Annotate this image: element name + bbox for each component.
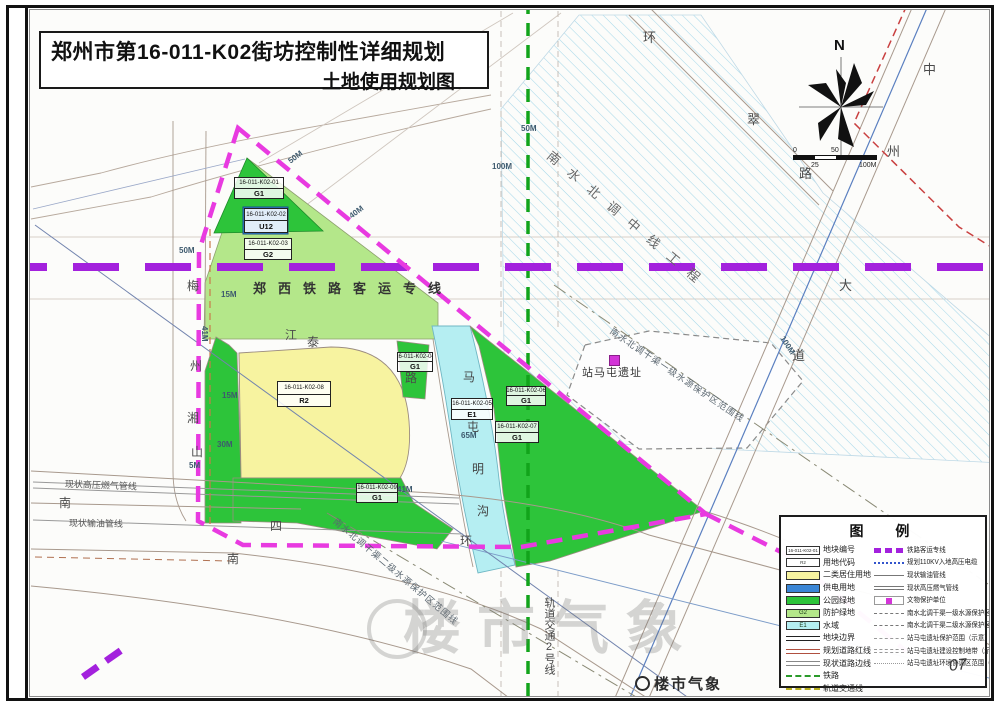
- map-label: 中: [923, 63, 936, 76]
- legend-swatch: [786, 661, 820, 666]
- legend-item: 文物保护单位: [874, 594, 986, 607]
- legend-title: 图 例: [792, 521, 981, 541]
- legend-label: 二类居住用地: [823, 571, 871, 579]
- legend-item: R2用地代码: [786, 557, 870, 570]
- legend-swatch: [786, 636, 820, 641]
- legend-item: 站马屯遗址建设控制地带（示意）: [874, 645, 986, 658]
- map-label: 四: [270, 520, 282, 532]
- map-label: 轨道交通2号线: [543, 597, 554, 675]
- parcel-landuse-code: U12: [245, 221, 287, 232]
- dimension-label: 15M: [222, 392, 238, 400]
- legend-item: 铁路客运专线: [874, 544, 986, 557]
- legend-item: 规划道路红线: [786, 645, 870, 658]
- legend-label: 南水北调干渠一级水源保护区范围线: [907, 610, 990, 617]
- map-label: 州: [190, 360, 202, 372]
- map-label: 翠: [747, 113, 760, 126]
- legend-label: 现状高压燃气管线: [907, 585, 959, 592]
- legend-item: 二类居住用地: [786, 569, 870, 582]
- legend-label: 防护绿地: [823, 609, 855, 617]
- dimension-label: 30M: [217, 441, 233, 449]
- map-label: 明: [472, 463, 484, 475]
- parcel-code: 16-011-K02-01: [235, 178, 283, 189]
- hv-cable-line: [33, 159, 245, 209]
- map-label: 大: [839, 279, 852, 292]
- legend-swatch: E1: [786, 621, 820, 630]
- dimension-label: 41M: [397, 486, 413, 494]
- dimension-label: 41M: [200, 326, 208, 342]
- map-label: 湘: [187, 412, 199, 424]
- parcel-code: 16-011-K02-03: [245, 239, 291, 250]
- legend-item: 南水北调干渠一级水源保护区范围线: [874, 607, 986, 620]
- watermark-logo-icon: [635, 676, 650, 691]
- map-label: 环: [460, 535, 472, 547]
- legend-label: 规划110KV入地高压电缆: [907, 559, 977, 566]
- legend-label: 现状输油管线: [907, 572, 946, 579]
- dimension-label: 65M: [461, 432, 477, 440]
- legend-item: 规划110KV入地高压电缆: [874, 557, 986, 570]
- legend-label: 站马屯遗址建设控制地带（示意）: [907, 648, 990, 655]
- legend-swatch: [786, 596, 820, 605]
- plan-sheet: 郑州市第16-011-K02街坊控制性详细规划 土地使用规划图 N: [0, 0, 1000, 706]
- title-box: 郑州市第16-011-K02街坊控制性详细规划 土地使用规划图: [39, 31, 489, 89]
- map-label: 沟: [477, 505, 489, 517]
- legend-swatch: [874, 548, 904, 553]
- legend-item: 现状高压燃气管线: [874, 582, 986, 595]
- legend-swatch: [874, 613, 904, 614]
- parcel-code: 16-011-K02-02: [245, 209, 287, 221]
- parcel-code: 16-011-K02-07: [496, 422, 538, 433]
- map-area: 郑州市第16-011-K02街坊控制性详细规划 土地使用规划图 N: [29, 9, 990, 697]
- legend-item: 站马屯遗址环境协调区范围（示意）: [874, 657, 986, 670]
- legend-swatch: [874, 649, 904, 653]
- parcel-landuse-code: G1: [507, 396, 545, 405]
- parcel-label-G1[interactable]: 16-011-K02-01G1: [234, 177, 284, 199]
- legend-label: 地块边界: [823, 634, 855, 642]
- legend-swatch: 16-011-K02-01: [786, 546, 820, 555]
- legend-swatch: R2: [786, 558, 820, 567]
- cultural-relic-marker: [609, 355, 620, 366]
- parcel-code: 16-011-K02-09: [357, 484, 397, 493]
- dimension-label: 50M: [179, 247, 195, 255]
- legend-swatch: [874, 562, 904, 564]
- scale-label: 50: [831, 147, 839, 154]
- legend-item: G2防护绿地: [786, 607, 870, 620]
- legend-swatch: [874, 596, 904, 605]
- legend-label: 铁路: [823, 672, 839, 680]
- map-label: 南: [227, 553, 239, 565]
- parcel-label-R2[interactable]: 16-011-K02-08R2: [277, 381, 331, 407]
- parcel-label-U12[interactable]: 16-011-K02-02U12: [244, 208, 288, 233]
- parcel-label-G1[interactable]: 16-011-K02-06G1: [506, 386, 546, 406]
- legend-label: 站马屯遗址保护范围（示意）: [907, 635, 990, 642]
- legend-item: 轨道交通线: [786, 683, 870, 696]
- parcel-label-G1[interactable]: 16-011-K02-09G1: [356, 483, 398, 503]
- scale-label: 0: [793, 147, 797, 154]
- dimension-label: 5M: [189, 462, 200, 470]
- legend-item: 站马屯遗址保护范围（示意）: [874, 632, 986, 645]
- legend-swatch: [874, 638, 904, 639]
- legend-swatch: [874, 625, 904, 626]
- legend-label: 文物保护单位: [907, 597, 946, 604]
- legend-label: 供电用地: [823, 584, 855, 592]
- parcel-landuse-code: G1: [398, 362, 432, 371]
- parcel-label-E1[interactable]: 16-011-K02-05E1: [451, 398, 493, 420]
- legend-label: 公园绿地: [823, 597, 855, 605]
- map-label: 州: [887, 145, 900, 158]
- legend-item: 现状道路边线: [786, 657, 870, 670]
- parcel-code: 16-011-K02-06: [507, 387, 545, 396]
- parcel-landuse-code: E1: [452, 410, 492, 420]
- map-label: 现状输油管线: [69, 519, 123, 529]
- green-strip-south[interactable]: [233, 478, 453, 549]
- north-label: N: [834, 37, 845, 54]
- parcel-residential-yellow-R2[interactable]: [239, 347, 410, 478]
- parcel-landuse-code: G1: [235, 189, 283, 199]
- legend-swatch: [874, 663, 904, 664]
- legend-item: 供电用地: [786, 582, 870, 595]
- parcel-landuse-code: R2: [278, 395, 330, 407]
- parcel-landuse-code: G1: [496, 433, 538, 443]
- legend-item: 现状输油管线: [874, 569, 986, 582]
- legend-label: 地块编号: [823, 546, 855, 554]
- legend-swatch: [874, 586, 904, 590]
- map-label: 环: [643, 31, 656, 44]
- watermark-text-small: 楼市气象: [654, 673, 722, 694]
- parcel-code: 16-011-K02-08: [278, 382, 330, 395]
- legend-item: 铁路: [786, 670, 870, 683]
- legend-label: 水域: [823, 622, 839, 630]
- parcel-label-G2[interactable]: 16-011-K02-03G2: [244, 238, 292, 260]
- map-label: 山: [191, 446, 203, 458]
- railway-segment-sw: [83, 649, 123, 677]
- map-label: 站马屯遗址: [582, 368, 642, 379]
- dimension-label: 100M: [492, 163, 512, 171]
- parcel-code: 16-011-K02-05: [452, 399, 492, 410]
- legend-label: 铁路客运专线: [907, 547, 946, 554]
- scale-label: 25: [811, 162, 819, 169]
- legend-item: 公园绿地: [786, 594, 870, 607]
- road-red-line: [35, 557, 231, 561]
- parcel-label-G1[interactable]: 16-011-K02-07G1: [495, 421, 539, 443]
- legend-item: 16-011-K02-01地块编号: [786, 544, 870, 557]
- legend-label: 现状道路边线: [823, 660, 871, 668]
- legend-label: 轨道交通线: [823, 685, 863, 693]
- scale-label: 100M: [859, 162, 877, 169]
- legend-swatch: [874, 575, 904, 576]
- map-label: 江: [285, 329, 297, 341]
- legend-swatch: [786, 688, 820, 690]
- legend-swatch: [786, 675, 820, 677]
- legend-swatch: [786, 649, 820, 654]
- map-label: 马: [463, 371, 475, 383]
- map-label: 南: [59, 497, 71, 509]
- plan-title: 郑州市第16-011-K02街坊控制性详细规划: [51, 36, 477, 66]
- legend-label: 南水北调干渠二级水源保护区范围线: [907, 622, 990, 629]
- legend-swatch: [786, 584, 820, 593]
- map-subtitle: 土地使用规划图: [51, 67, 477, 94]
- legend-label: 用地代码: [823, 559, 855, 567]
- dimension-label: 15M: [221, 291, 237, 299]
- scale-bar: 0 50 25 100M: [793, 147, 883, 169]
- parcel-label-G1[interactable]: 16-011-K02-04G1: [397, 352, 433, 372]
- page-number: 07: [948, 656, 968, 676]
- legend-item: E1水域: [786, 620, 870, 633]
- legend-swatch: [786, 571, 820, 580]
- legend-item: 南水北调干渠二级水源保护区范围线: [874, 620, 986, 633]
- legend-label: 规划道路红线: [823, 647, 871, 655]
- legend-item: 地块边界: [786, 632, 870, 645]
- map-label: 郑西铁路客运专线: [253, 282, 453, 295]
- map-label: 梅: [187, 280, 199, 292]
- dimension-label: 50M: [521, 125, 537, 133]
- legend-swatch: G2: [786, 609, 820, 618]
- parcel-code: 16-011-K02-04: [398, 353, 432, 362]
- parcel-landuse-code: G1: [357, 493, 397, 502]
- parcel-landuse-code: G2: [245, 250, 291, 260]
- sheet-frame-binding: [25, 5, 28, 701]
- watermark-signature: 楼市气象: [635, 673, 722, 694]
- map-label: 路: [405, 372, 417, 384]
- map-label: 泰: [307, 336, 319, 348]
